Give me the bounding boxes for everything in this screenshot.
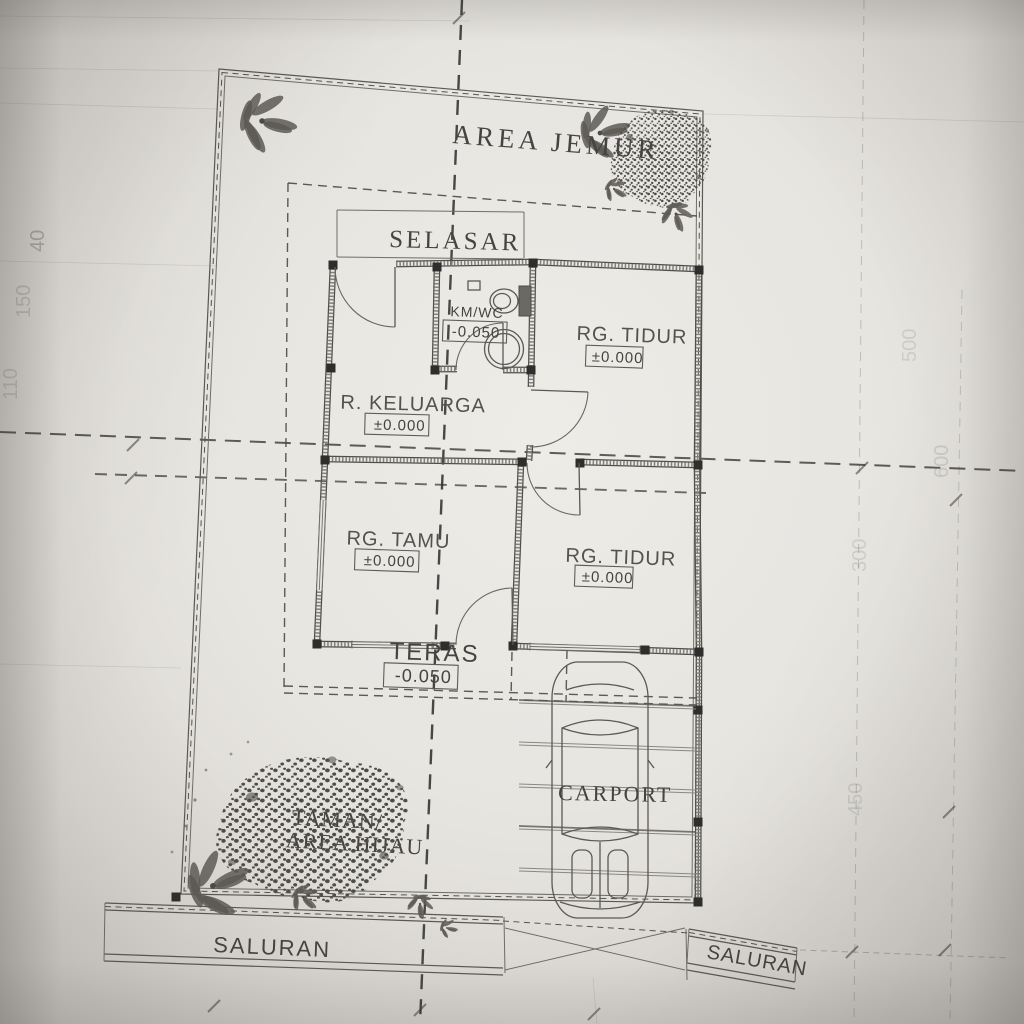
living-room-label-group: RG. TAMU ±0.000 — [345, 527, 450, 573]
bedroom-top-level: ±0.000 — [591, 348, 643, 367]
wall-top-right — [533, 259, 699, 271]
shower-fixture-icon — [468, 281, 480, 290]
teras-label-group: TERAS -0.050 — [383, 638, 480, 690]
driveway-crossing — [503, 917, 689, 980]
saluran-left-label: SALURAN — [213, 932, 332, 962]
grid-line-right-1 — [854, 0, 864, 1024]
wall-kmwc-left — [432, 266, 439, 370]
dimension-right-500: 500 — [899, 329, 921, 362]
photographed-floor-plan: AREA JEMUR SELASAR KM/WC -0.050 RG. TIDU… — [0, 0, 1024, 1024]
door-arc-selasar — [335, 267, 395, 327]
plant-icon-bottom-small-3 — [438, 917, 460, 940]
family-room-label: R. KELUARGA — [340, 392, 486, 418]
dimension-left-40: 40 — [27, 230, 49, 252]
bedroom-top-label-group: RG. TIDUR ±0.000 — [575, 323, 687, 370]
wall-middle-right — [579, 459, 698, 467]
plant-icon-bottom-small-2 — [404, 892, 436, 921]
window-front-right — [530, 643, 640, 654]
wall-tamu-right — [511, 462, 523, 644]
section-line-horizontal-b — [95, 474, 706, 493]
bedroom-bottom-label-group: RG. TIDUR ±0.000 — [564, 545, 676, 590]
section-line-vertical — [420, 0, 462, 1024]
kmwc-label: KM/WC — [450, 303, 504, 321]
dimension-right-300: 300 — [849, 539, 871, 572]
door-arc-bedroom-top — [530, 390, 588, 447]
wall-middle-left — [325, 456, 527, 464]
wall-kmwc-bottom — [437, 366, 532, 372]
kmwc-level: -0.050 — [451, 323, 500, 342]
bedroom-top-label: RG. TIDUR — [576, 323, 688, 349]
carport-label: CARPORT — [558, 780, 673, 807]
wall-top-left — [396, 259, 533, 266]
floor-plan-drawing: AREA JEMUR SELASAR KM/WC -0.050 RG. TIDU… — [0, 0, 1024, 1024]
grid-line-right-2 — [950, 290, 962, 1024]
selasar-label: SELASAR — [389, 226, 522, 256]
dimension-left-110: 110 — [0, 368, 22, 400]
family-room-label-group: R. KELUARGA ±0.000 — [340, 392, 487, 438]
plant-icon-top-left — [234, 86, 303, 160]
section-line-horizontal-a — [0, 432, 1024, 471]
dimension-right-600: 600 — [931, 445, 953, 478]
door-arc-hall — [527, 463, 580, 515]
wall-left-upper — [322, 265, 335, 459]
living-room-level: ±0.000 — [363, 552, 415, 571]
shrub-icon-bottom — [216, 756, 408, 902]
dimension-left-150: 150 — [13, 285, 35, 318]
bedroom-bottom-level: ±0.000 — [581, 568, 633, 587]
family-room-level: ±0.000 — [374, 416, 426, 434]
floor-plan-photo: AREA JEMUR SELASAR KM/WC -0.050 RG. TIDU… — [0, 0, 1024, 1024]
door-arc-teras — [456, 588, 513, 645]
dimension-right-450: 450 — [845, 783, 867, 816]
roof-outline-dashed — [284, 183, 697, 705]
teras-level: -0.050 — [394, 665, 452, 687]
